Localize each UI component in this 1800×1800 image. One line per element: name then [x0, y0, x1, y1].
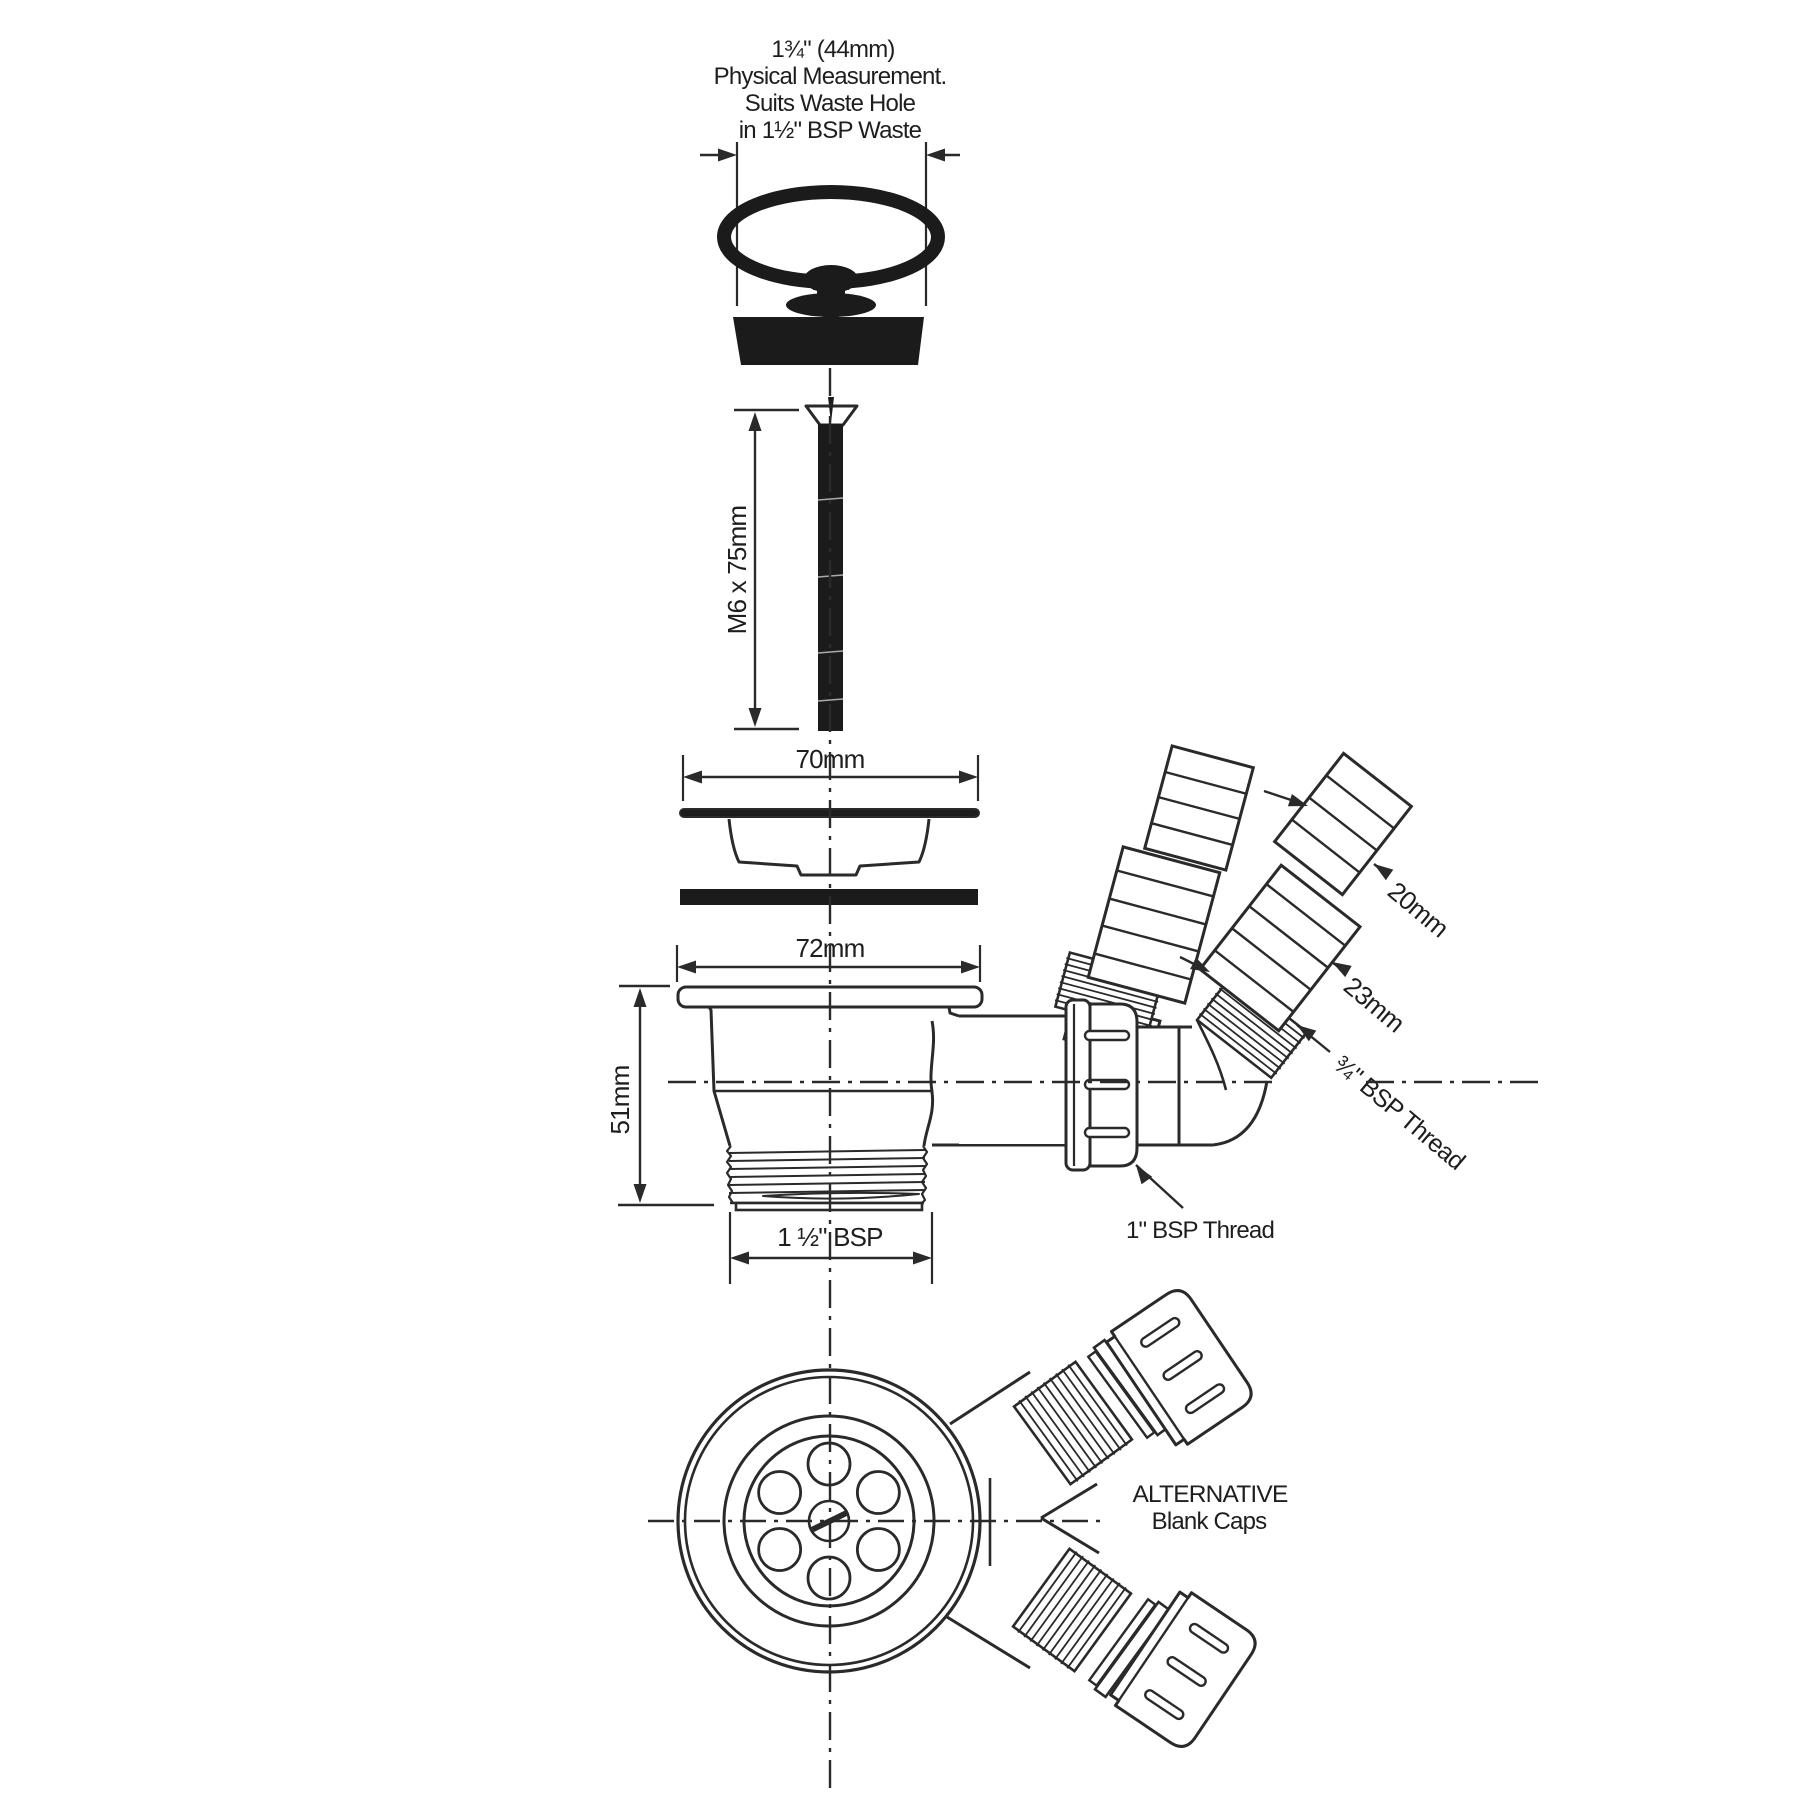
svg-text:Physical Measurement.: Physical Measurement.: [714, 63, 947, 90]
svg-text:1¾" (44mm): 1¾" (44mm): [771, 36, 894, 63]
svg-text:Suits Waste Hole: Suits Waste Hole: [745, 90, 916, 117]
svg-text:Blank Caps: Blank Caps: [1152, 1508, 1268, 1535]
svg-text:1" BSP Thread: 1" BSP Thread: [1126, 1217, 1274, 1244]
svg-text:in 1½" BSP Waste: in 1½" BSP Waste: [739, 117, 922, 144]
svg-text:ALTERNATIVE: ALTERNATIVE: [1132, 1481, 1287, 1508]
svg-text:M6 x 75mm: M6 x 75mm: [722, 506, 752, 635]
svg-text:51mm: 51mm: [605, 1065, 635, 1134]
